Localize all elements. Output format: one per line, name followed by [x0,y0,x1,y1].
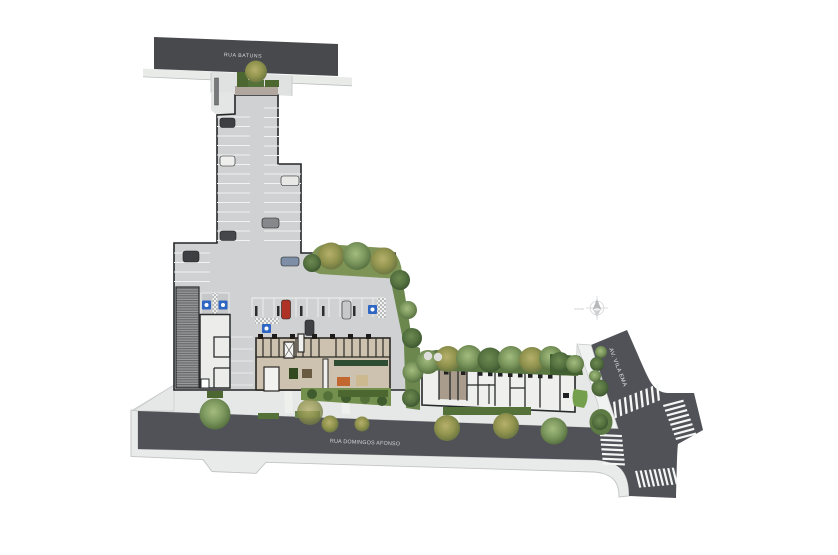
svg-text:NORTE: NORTE [574,307,584,311]
